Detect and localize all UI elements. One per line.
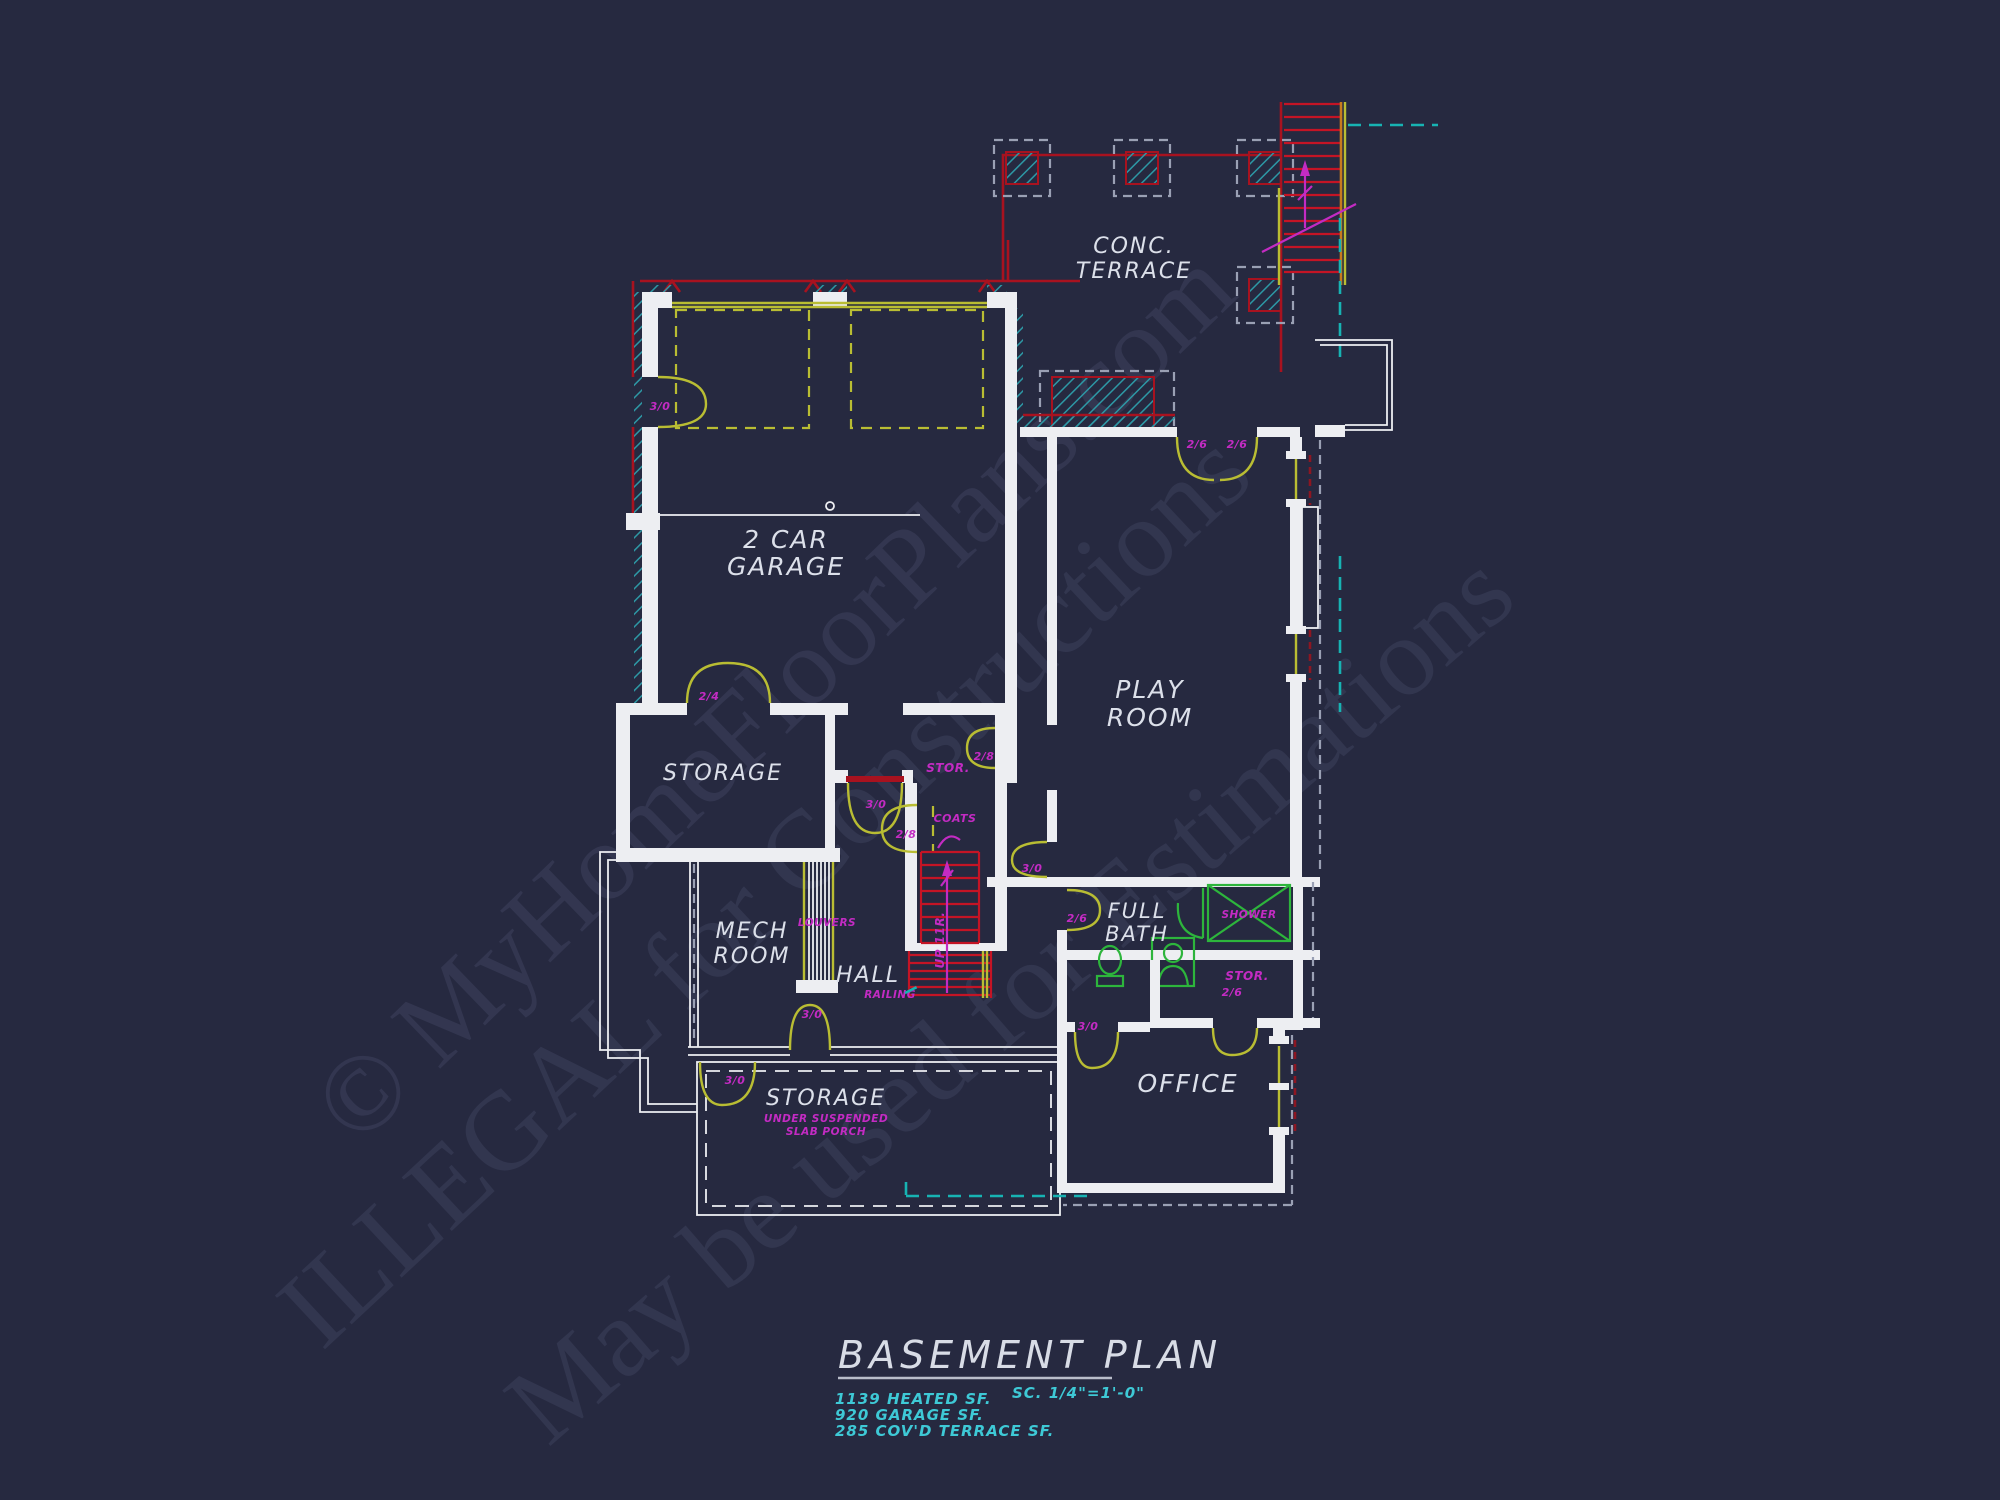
shower-label: SHOWER [1221, 909, 1276, 921]
stair-treads [921, 852, 979, 943]
wall [905, 783, 917, 950]
wall [685, 848, 798, 860]
door-label: 3/0 [725, 1074, 746, 1087]
stairs-up-label: UP 11R. [933, 912, 947, 969]
wall [796, 848, 838, 862]
wall-bumpout [1302, 507, 1318, 628]
room-label-mech-2: ROOM [714, 944, 791, 969]
window-jamb [1286, 499, 1306, 507]
window-jamb [1286, 451, 1306, 459]
wall [995, 715, 1007, 950]
door-label: 3/0 [866, 798, 887, 811]
wall [1047, 437, 1057, 725]
room-label-mech-1: MECH [716, 919, 789, 944]
room-label-terrace-2: TERRACE [1076, 259, 1192, 284]
wall-hatch [813, 285, 847, 292]
wall [1047, 790, 1057, 842]
room-label-hall: HALL [836, 963, 900, 988]
window-jamb [1269, 1036, 1289, 1044]
room-label-garage-2: GARAGE [727, 552, 845, 581]
stair-threshold [905, 943, 1007, 951]
door-label: 2/8 [974, 750, 995, 763]
title-block: BASEMENT PLAN SC. 1/4"=1'-0" 1139 HEATED… [835, 1333, 1222, 1440]
door-header [846, 776, 904, 782]
garage-door-track [851, 310, 983, 428]
door-label: 2/6 [1067, 912, 1088, 925]
wall [1257, 427, 1300, 437]
wall [1020, 427, 1177, 437]
room-label-stor-bath: STOR. [1225, 969, 1269, 983]
room-label-terrace-1: CONC. [1093, 234, 1175, 259]
storage-lower-sub2: SLAB PORCH [786, 1126, 866, 1138]
room-label-storage-lower: STORAGE [766, 1086, 886, 1111]
room-label-playroom-1: PLAY [1115, 675, 1184, 704]
wall [1057, 1183, 1285, 1193]
door-label: 2/6 [1187, 438, 1208, 451]
door-swing [1075, 1032, 1118, 1068]
door-label: 2/6 [1227, 438, 1248, 451]
room-label-garage-1: 2 CAR [743, 525, 829, 554]
door-label: 2/8 [896, 828, 917, 841]
wall-hatch [1017, 308, 1023, 428]
room-label-stor-understair: STOR. [926, 761, 970, 775]
room-label-office: OFFICE [1137, 1069, 1238, 1098]
door-label: 2/6 [1222, 986, 1243, 999]
stair-up-arrow [942, 860, 952, 876]
room-label-bath-1: FULL [1108, 899, 1167, 923]
areaway [1315, 340, 1392, 437]
terrace-stairs [1262, 102, 1356, 285]
wall [903, 703, 1007, 715]
wall-hatch [650, 285, 672, 292]
coats-arrow [938, 836, 960, 848]
floor-drain [826, 502, 834, 510]
wall-hatch [634, 292, 642, 705]
wall [796, 980, 838, 993]
wall [616, 703, 630, 862]
garage: 3/0 2 CAR GARAGE [616, 281, 1080, 783]
door-label: 3/0 [802, 1008, 823, 1021]
wall [1273, 1133, 1285, 1193]
foundation-dash [1063, 1035, 1292, 1205]
wall [1290, 503, 1302, 632]
watermark-copyright: © MyHomeFloorPlans.com [290, 226, 1257, 1166]
wall [987, 292, 1017, 308]
door-swing [1213, 1028, 1257, 1055]
wall [642, 292, 658, 377]
wall-hatch [987, 285, 1007, 292]
wall [770, 703, 848, 715]
room-label-storage-upper: STORAGE [663, 761, 783, 786]
wall [642, 427, 658, 705]
wall [813, 292, 847, 308]
louvers-label: LOUVERS [798, 917, 856, 929]
room-label-coats: COATS [934, 812, 977, 825]
area-terrace: 285 COV'D TERRACE SF. [835, 1422, 1054, 1440]
wall [1290, 678, 1302, 877]
garage-sill [626, 513, 660, 530]
plan-scale: SC. 1/4"=1'-0" [1012, 1384, 1145, 1402]
wall [1057, 950, 1320, 960]
door-label: 3/0 [1078, 1020, 1099, 1033]
door-label: 3/0 [1022, 862, 1043, 875]
wall [1150, 960, 1160, 1018]
storage-lower-sub1: UNDER SUSPENDED [764, 1113, 888, 1125]
wall [1118, 1022, 1150, 1032]
room-label-playroom-2: ROOM [1107, 703, 1193, 732]
wall [825, 715, 835, 850]
plan-title: BASEMENT PLAN [838, 1333, 1222, 1377]
watermark-layer: © MyHomeFloorPlans.com ILLEGAL for Const… [254, 226, 1536, 1467]
window-jamb [1269, 1127, 1289, 1135]
door-label: 2/4 [699, 690, 720, 703]
window-jamb [1286, 674, 1306, 682]
terrace: CONC. TERRACE [994, 102, 1438, 437]
office: 3/0 OFFICE [1057, 1018, 1303, 1205]
window-jamb [1269, 1083, 1289, 1090]
wall [1150, 1018, 1213, 1028]
garage-door-track [676, 310, 809, 428]
floor-plan-canvas: © MyHomeFloorPlans.com ILLEGAL for Const… [0, 0, 2000, 1500]
room-label-bath-2: BATH [1105, 922, 1169, 946]
wall [1063, 1022, 1075, 1032]
door-label: 3/0 [650, 400, 671, 413]
wall [1293, 877, 1303, 1025]
